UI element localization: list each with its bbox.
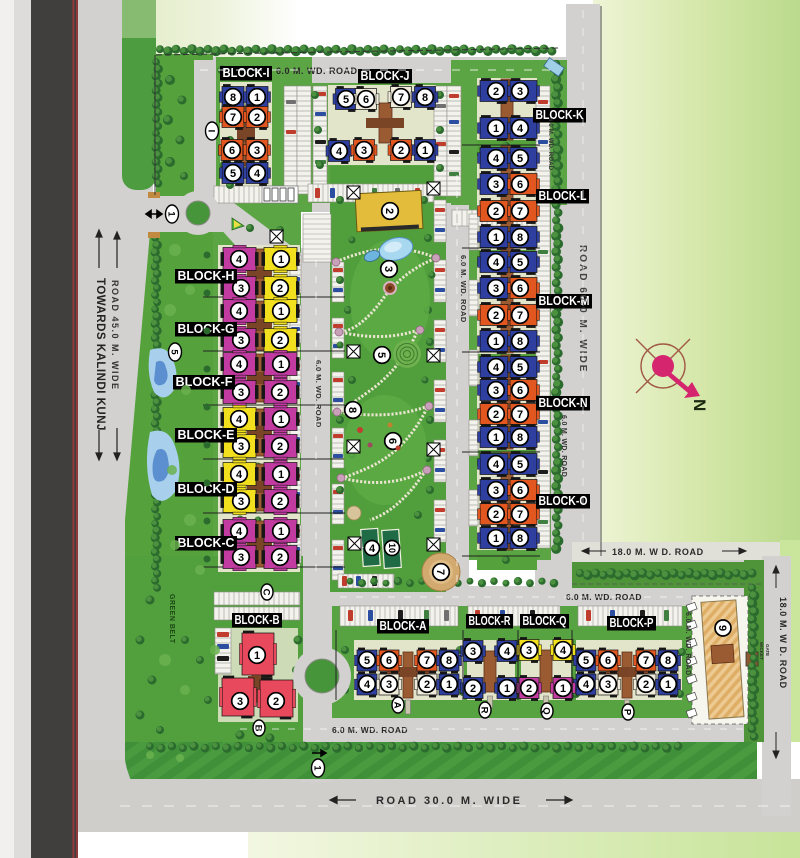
- svg-text:7: 7: [517, 509, 523, 521]
- svg-text:C: C: [261, 589, 272, 596]
- svg-text:1: 1: [493, 123, 499, 135]
- svg-text:3: 3: [493, 179, 499, 191]
- svg-text:8: 8: [422, 92, 428, 104]
- svg-text:1: 1: [493, 533, 499, 545]
- svg-text:1: 1: [493, 232, 499, 244]
- svg-text:4: 4: [493, 153, 500, 165]
- svg-text:4: 4: [236, 469, 243, 481]
- svg-text:GREEN BELT: GREEN BELT: [168, 594, 175, 644]
- svg-text:2: 2: [254, 112, 260, 124]
- svg-text:4: 4: [236, 254, 243, 266]
- svg-text:3: 3: [605, 679, 611, 691]
- svg-text:BLOCK-B: BLOCK-B: [235, 613, 280, 627]
- svg-text:2: 2: [277, 441, 283, 453]
- svg-text:5: 5: [364, 655, 370, 667]
- svg-text:2: 2: [277, 387, 283, 399]
- svg-text:6.0 M. WD. ROAD: 6.0 M. WD. ROAD: [332, 725, 408, 735]
- svg-text:BLOCK-C: BLOCK-C: [178, 536, 235, 550]
- svg-text:2: 2: [398, 145, 404, 157]
- svg-text:6: 6: [229, 145, 235, 157]
- svg-text:1: 1: [665, 679, 671, 691]
- svg-text:BLOCK-R: BLOCK-R: [469, 614, 511, 628]
- svg-text:6.0 M. WD. ROAD: 6.0 M. WD. ROAD: [459, 255, 468, 323]
- svg-text:6: 6: [517, 283, 523, 295]
- svg-text:1: 1: [422, 145, 428, 157]
- svg-text:6: 6: [363, 94, 369, 106]
- svg-text:1: 1: [504, 683, 510, 695]
- svg-text:1: 1: [493, 432, 499, 444]
- svg-text:A: A: [392, 702, 403, 709]
- svg-text:7: 7: [434, 569, 446, 575]
- svg-text:3: 3: [237, 696, 243, 708]
- svg-text:5: 5: [169, 349, 180, 355]
- svg-text:3: 3: [386, 679, 392, 691]
- svg-text:7: 7: [230, 112, 236, 124]
- svg-text:3: 3: [238, 387, 244, 399]
- svg-text:2: 2: [493, 86, 499, 98]
- svg-text:BLOCK-K: BLOCK-K: [536, 108, 584, 122]
- svg-text:3: 3: [493, 485, 499, 497]
- svg-text:1: 1: [278, 469, 284, 481]
- svg-text:1: 1: [560, 683, 566, 695]
- svg-text:8: 8: [230, 92, 236, 104]
- svg-text:7: 7: [643, 655, 649, 667]
- svg-text:4: 4: [364, 679, 371, 691]
- svg-text:18.0 M. W D. ROAD: 18.0 M. W D. ROAD: [778, 597, 788, 689]
- svg-text:10: 10: [387, 543, 397, 553]
- svg-text:3: 3: [238, 283, 244, 295]
- svg-text:3: 3: [526, 645, 532, 657]
- svg-text:9: 9: [716, 625, 728, 631]
- svg-text:3: 3: [517, 86, 523, 98]
- svg-text:BLOCK-E: BLOCK-E: [178, 428, 235, 442]
- svg-text:4: 4: [369, 543, 376, 555]
- svg-text:7: 7: [517, 206, 523, 218]
- svg-text:3: 3: [382, 266, 394, 272]
- svg-text:1: 1: [254, 650, 260, 662]
- svg-text:P: P: [622, 709, 633, 716]
- svg-text:1: 1: [278, 359, 284, 371]
- svg-text:Q: Q: [541, 707, 552, 714]
- svg-text:3: 3: [238, 496, 244, 508]
- svg-text:1: 1: [312, 765, 323, 771]
- svg-text:5: 5: [517, 459, 523, 471]
- svg-text:8: 8: [346, 407, 358, 413]
- svg-text:4: 4: [493, 362, 500, 374]
- svg-text:6: 6: [605, 655, 611, 667]
- svg-text:5: 5: [230, 168, 236, 180]
- svg-text:2: 2: [277, 283, 283, 295]
- svg-text:6.0 M. WD. ROAD: 6.0 M. WD. ROAD: [314, 360, 323, 428]
- svg-text:5: 5: [517, 153, 523, 165]
- svg-text:4: 4: [336, 146, 343, 158]
- svg-text:5: 5: [343, 94, 349, 106]
- svg-text:BLOCK-N: BLOCK-N: [539, 396, 588, 410]
- svg-text:1: 1: [278, 254, 284, 266]
- svg-text:5: 5: [517, 257, 523, 269]
- svg-text:8: 8: [517, 232, 523, 244]
- svg-text:6: 6: [386, 438, 398, 444]
- svg-text:6.0 M. WD. ROAD: 6.0 M. WD. ROAD: [684, 612, 691, 676]
- svg-text:4: 4: [236, 359, 243, 371]
- svg-text:3: 3: [254, 145, 260, 157]
- svg-text:2: 2: [493, 409, 499, 421]
- svg-text:1: 1: [254, 92, 260, 104]
- svg-text:6: 6: [517, 179, 523, 191]
- svg-text:6.0 M. WD. ROAD: 6.0 M. WD. ROAD: [276, 66, 358, 76]
- svg-text:7: 7: [424, 655, 430, 667]
- svg-text:1: 1: [493, 336, 499, 348]
- svg-text:B: B: [253, 725, 264, 732]
- svg-text:5: 5: [517, 362, 523, 374]
- svg-text:R: R: [479, 707, 490, 714]
- svg-text:BLOCK-O: BLOCK-O: [539, 494, 588, 508]
- svg-text:4: 4: [493, 257, 500, 269]
- svg-text:4: 4: [517, 123, 524, 135]
- svg-text:BLOCK-Q: BLOCK-Q: [523, 614, 567, 628]
- svg-text:1: 1: [446, 679, 452, 691]
- svg-text:1: 1: [166, 211, 177, 217]
- svg-text:2: 2: [277, 496, 283, 508]
- svg-text:8: 8: [446, 655, 452, 667]
- svg-text:WICKET: WICKET: [759, 642, 764, 660]
- svg-text:8: 8: [517, 533, 523, 545]
- svg-text:6.0 M. WD. ROAD: 6.0 M. WD. ROAD: [547, 118, 553, 171]
- svg-text:3: 3: [470, 646, 476, 658]
- svg-text:6.0 M. WD. ROAD: 6.0 M. WD. ROAD: [560, 415, 567, 477]
- svg-text:1: 1: [278, 306, 284, 318]
- svg-text:ROAD 30.0 M. WIDE: ROAD 30.0 M. WIDE: [376, 795, 522, 807]
- svg-text:4: 4: [560, 645, 567, 657]
- svg-text:N: N: [690, 399, 709, 411]
- svg-text:BLOCK-H: BLOCK-H: [178, 269, 235, 283]
- svg-text:18.0 M. W D. ROAD: 18.0 M. W D. ROAD: [612, 547, 704, 557]
- svg-text:7: 7: [398, 92, 404, 104]
- svg-text:3: 3: [493, 283, 499, 295]
- svg-text:ROAD 45.0 M. WIDE: ROAD 45.0 M. WIDE: [110, 280, 120, 391]
- svg-text:3: 3: [238, 552, 244, 564]
- svg-text:2: 2: [277, 335, 283, 347]
- svg-text:2: 2: [273, 696, 279, 708]
- svg-text:4: 4: [236, 414, 243, 426]
- svg-text:2: 2: [526, 683, 532, 695]
- svg-text:3: 3: [361, 145, 367, 157]
- svg-text:GATE: GATE: [765, 644, 770, 656]
- svg-text:TOWARDS KALINDI KUNJ: TOWARDS KALINDI KUNJ: [94, 278, 106, 431]
- svg-text:BLOCK-J: BLOCK-J: [361, 69, 410, 83]
- svg-text:7: 7: [517, 310, 523, 322]
- svg-text:2: 2: [493, 206, 499, 218]
- svg-text:8: 8: [517, 432, 523, 444]
- svg-text:2: 2: [493, 310, 499, 322]
- svg-text:3: 3: [493, 385, 499, 397]
- svg-text:5: 5: [583, 655, 589, 667]
- svg-text:4: 4: [583, 679, 590, 691]
- svg-text:I: I: [206, 130, 217, 133]
- svg-text:2: 2: [424, 679, 430, 691]
- svg-text:2: 2: [493, 509, 499, 521]
- svg-text:4: 4: [504, 646, 511, 658]
- svg-text:4: 4: [236, 306, 243, 318]
- svg-text:4: 4: [254, 168, 261, 180]
- svg-text:2: 2: [470, 683, 476, 695]
- svg-text:5: 5: [375, 352, 387, 358]
- svg-text:6: 6: [517, 485, 523, 497]
- svg-text:6: 6: [517, 385, 523, 397]
- svg-text:7: 7: [517, 409, 523, 421]
- svg-text:4: 4: [493, 459, 500, 471]
- svg-text:8: 8: [517, 336, 523, 348]
- svg-text:6: 6: [386, 655, 392, 667]
- svg-text:3: 3: [238, 335, 244, 347]
- svg-text:2: 2: [383, 208, 395, 214]
- svg-text:BLOCK-L: BLOCK-L: [539, 189, 587, 203]
- svg-text:2: 2: [643, 679, 649, 691]
- svg-text:8: 8: [665, 655, 671, 667]
- svg-text:1: 1: [278, 414, 284, 426]
- svg-text:BLOCK-A: BLOCK-A: [380, 619, 427, 633]
- svg-text:3: 3: [238, 441, 244, 453]
- svg-text:2: 2: [277, 552, 283, 564]
- svg-text:1: 1: [278, 526, 284, 538]
- svg-text:BLOCK-I: BLOCK-I: [223, 66, 270, 80]
- svg-text:BLOCK-P: BLOCK-P: [610, 616, 654, 630]
